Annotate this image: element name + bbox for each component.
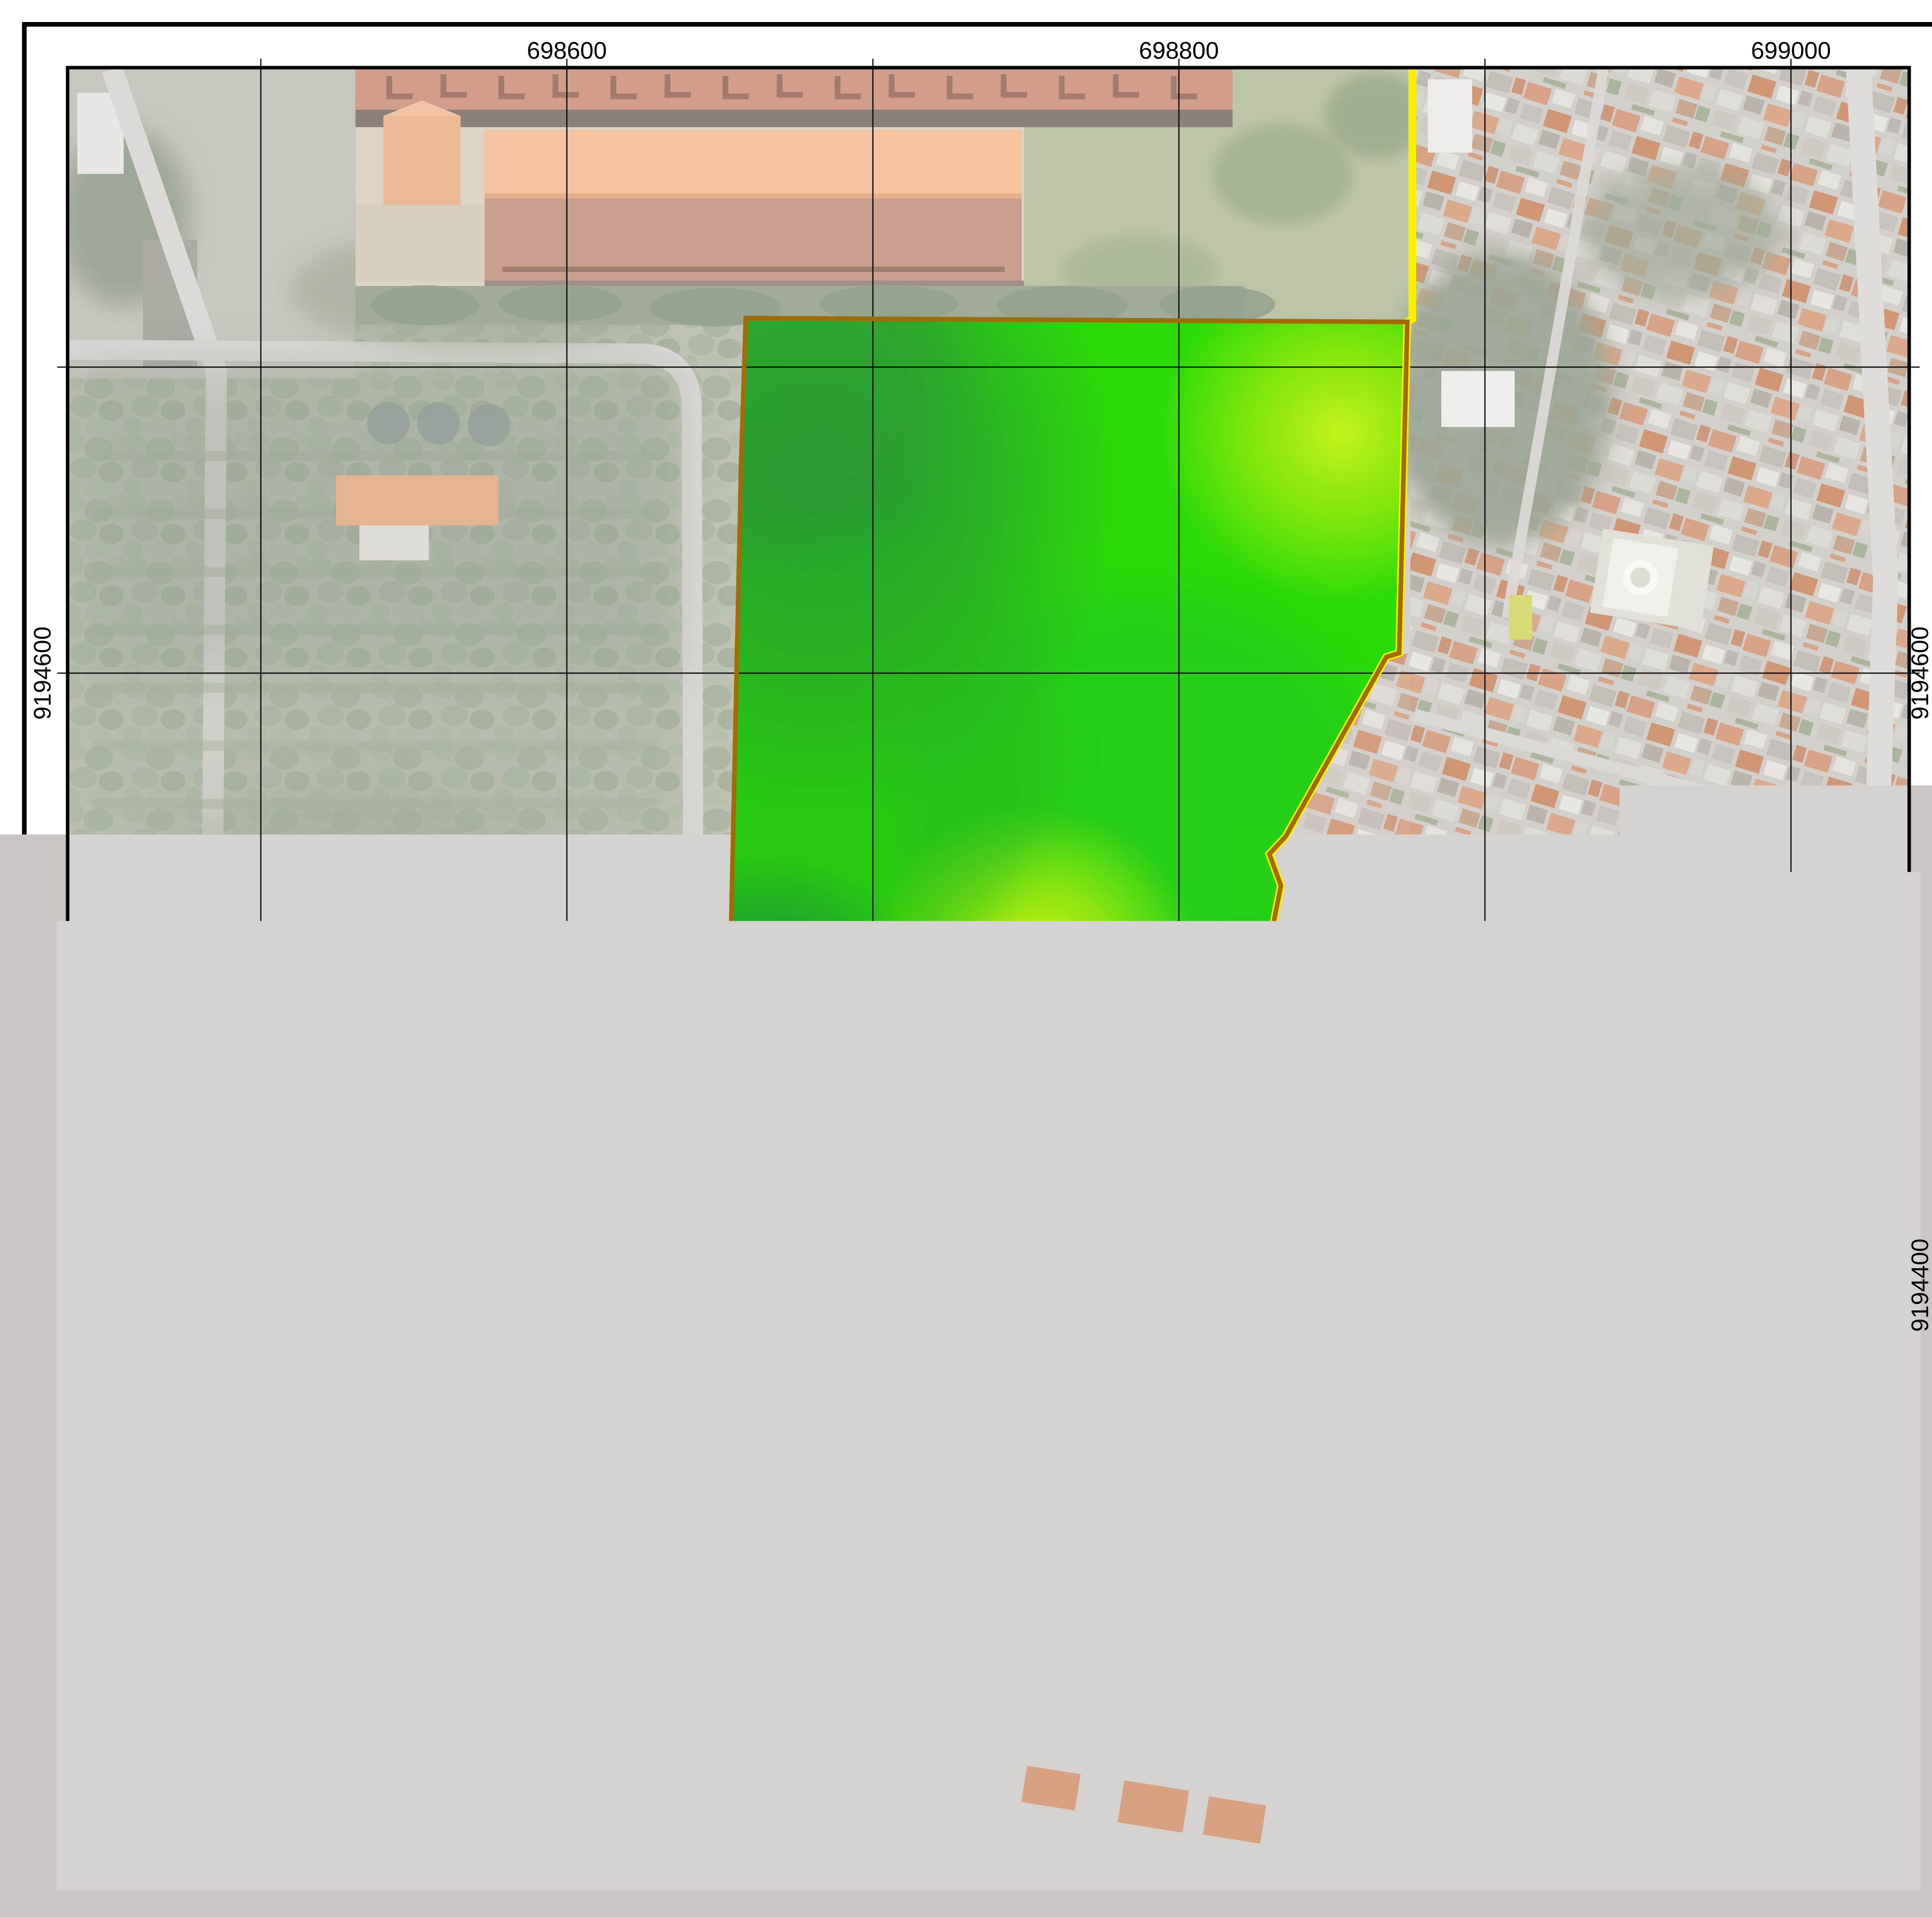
svg-text:698800: 698800 [1139, 1864, 1219, 1890]
svg-text:698600: 698600 [527, 37, 607, 64]
svg-text:699000: 699000 [1751, 1864, 1831, 1890]
svg-text:699000: 699000 [1751, 37, 1831, 64]
svg-text:Source: Esri, Maxar, Earthstar: Source: Esri, Maxar, Earthstar Geographi… [1450, 1785, 1857, 1804]
svg-text:698800: 698800 [1139, 37, 1219, 64]
svg-text:9194600: 9194600 [1907, 626, 1932, 720]
svg-text:698600: 698600 [527, 1864, 607, 1890]
svg-text:9194400: 9194400 [29, 1238, 56, 1332]
svg-text:9194600: 9194600 [29, 626, 56, 720]
svg-text:9194400: 9194400 [1907, 1238, 1932, 1332]
